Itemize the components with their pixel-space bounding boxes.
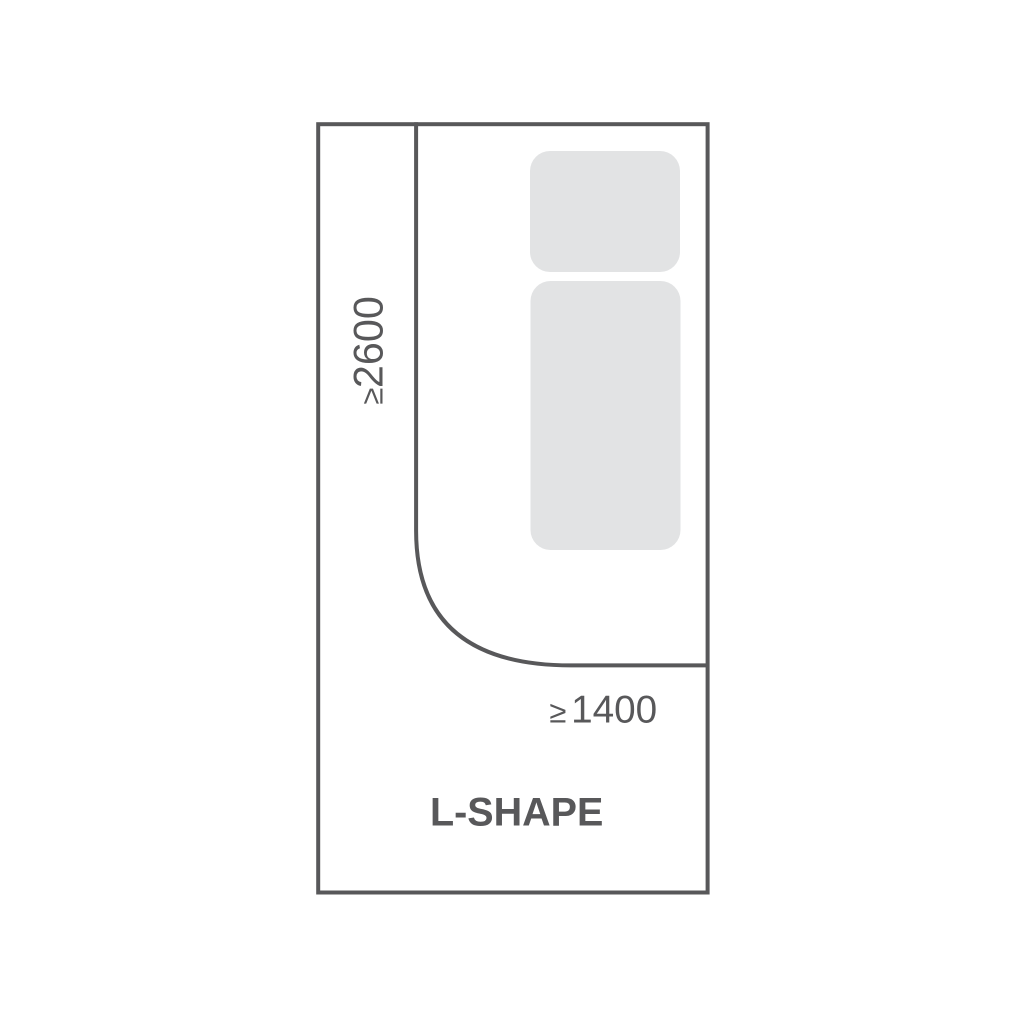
- svg-text:≥2600: ≥2600: [346, 296, 392, 404]
- svg-text:≥1400: ≥1400: [549, 689, 657, 732]
- svg-text:L-SHAPE: L-SHAPE: [430, 790, 603, 834]
